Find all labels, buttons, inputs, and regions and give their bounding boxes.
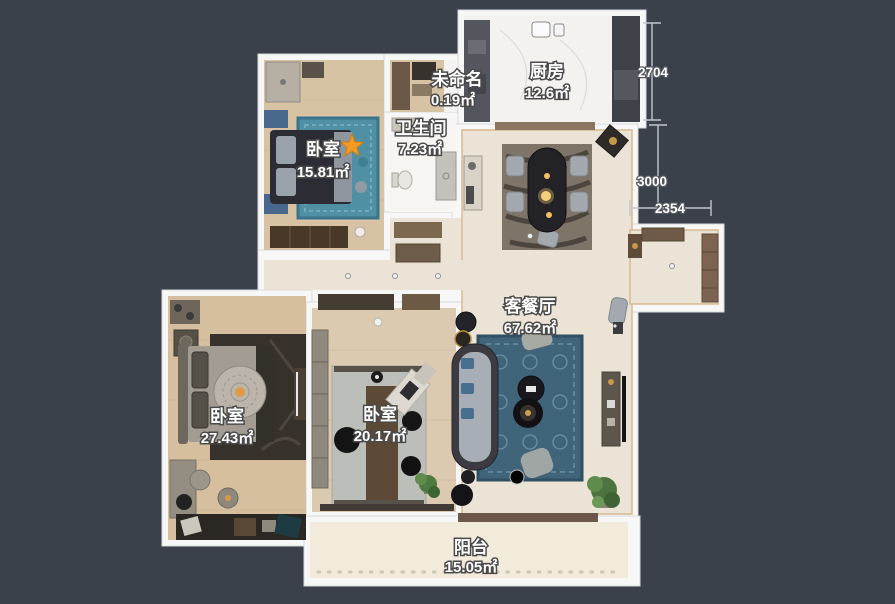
- tv-stand-left-bedroom[interactable]: [294, 368, 306, 420]
- label-living-dining-area: 67.62㎡: [504, 319, 557, 337]
- toilet-tank: [392, 173, 398, 187]
- closet-shelf-tall[interactable]: [392, 62, 410, 110]
- ceiling-light-corridor-2: [393, 274, 398, 279]
- pouf-middle-3[interactable]: [401, 456, 421, 476]
- fridge: [614, 70, 638, 100]
- label-bedroom-left-area: 27.43㎡: [201, 429, 254, 447]
- sink-icon-small: [554, 24, 564, 36]
- tv-cabinet-item-2: [607, 418, 615, 426]
- dining-chair-2[interactable]: [506, 192, 524, 212]
- label-unnamed-area: 0.19㎡: [431, 91, 475, 109]
- chandelier-light-3: [546, 212, 552, 218]
- wardrobe-middle[interactable]: [312, 330, 328, 488]
- tv-cabinet-decor: [608, 379, 614, 385]
- plant-middle-leaf-1: [415, 473, 427, 485]
- label-living-dining-name: 客餐厅: [504, 296, 556, 316]
- coffee-table-center: [525, 410, 531, 416]
- closet-shelf-small: [412, 84, 432, 96]
- label-bedroom-top-left-name: 卧室: [306, 139, 340, 159]
- hall-header-dark: [318, 294, 394, 310]
- floorplan-canvas: 卧室 15.81㎡ 卫生间 7.23㎡ 未命名 0.19㎡ 厨房 12.6㎡ 客…: [0, 0, 895, 604]
- bed-left-pillow-2: [192, 392, 208, 428]
- label-bedroom-middle-area: 20.17㎡: [354, 427, 407, 445]
- tv-cabinet-item-1: [607, 400, 615, 408]
- bed-headboard-left: [178, 344, 188, 444]
- dim-label-2354: 2354: [655, 201, 686, 216]
- shelf-item[interactable]: [302, 62, 324, 78]
- floorplan-svg: 卧室 15.81㎡ 卫生间 7.23㎡ 未命名 0.19㎡ 厨房 12.6㎡ 客…: [0, 0, 895, 604]
- round-table-left-bedroom[interactable]: [190, 470, 210, 490]
- toilet[interactable]: [398, 171, 412, 189]
- pouf-small: [461, 470, 475, 484]
- plant-living-leaf-2: [604, 492, 620, 508]
- dining-chair-4[interactable]: [570, 192, 588, 212]
- label-bedroom-top-left-area: 15.81㎡: [297, 163, 350, 181]
- plant-living-leaf-3: [592, 496, 604, 508]
- chandelier-light-1: [544, 173, 550, 179]
- tv-screen[interactable]: [622, 376, 626, 442]
- cooktop: [468, 40, 486, 54]
- sofa-pillow-2: [461, 383, 474, 394]
- rug-cushion-1: [358, 157, 368, 167]
- hall-header-brown: [402, 294, 440, 310]
- switch-icon-dot: [613, 324, 616, 327]
- ceiling-light-middle: [374, 318, 382, 326]
- window-seat-pillow-gray: [262, 520, 276, 532]
- ceiling-light-living: [528, 234, 533, 239]
- dim-label-2704: 2704: [638, 65, 669, 80]
- bed-left-pillow-1: [192, 352, 208, 388]
- sink-icon: [532, 22, 550, 37]
- rug-cushion-2: [355, 181, 367, 193]
- pouf-decor: [225, 495, 231, 501]
- plant-middle-leaf-2: [428, 486, 440, 498]
- label-unnamed-name: 未命名: [431, 69, 483, 89]
- window-frame-middle: [320, 504, 454, 511]
- dim-label-3000: 3000: [637, 174, 667, 189]
- round-stool-dark[interactable]: [456, 312, 476, 332]
- kitchen-door-sill: [495, 122, 595, 130]
- extension-cabinet-right[interactable]: [702, 234, 718, 302]
- plant-living-leaf-1: [587, 476, 603, 492]
- hall-cabinet-lower[interactable]: [396, 244, 440, 262]
- chair-dark-left-bedroom[interactable]: [176, 494, 192, 510]
- pouf-large[interactable]: [451, 484, 473, 506]
- ceiling-light-extension: [670, 264, 675, 269]
- label-balcony-area: 15.05㎡: [445, 558, 498, 576]
- coffee-table-tray: [526, 386, 536, 392]
- label-bathroom-name: 卫生间: [396, 118, 447, 138]
- side-table-item-1: [174, 304, 182, 312]
- label-kitchen-area: 12.6㎡: [525, 84, 569, 102]
- label-bathroom-area: 7.23㎡: [398, 140, 442, 158]
- mandala-center: [235, 387, 245, 397]
- sideboard-bowl: [468, 162, 476, 170]
- bed-pillow-1: [276, 136, 296, 164]
- extension-decor-gold: [632, 243, 638, 249]
- pouf-middle-4-dot: [375, 375, 379, 379]
- shower[interactable]: [436, 152, 456, 200]
- label-bedroom-middle-name: 卧室: [363, 404, 397, 424]
- label-bedroom-left-name: 卧室: [210, 406, 244, 426]
- stool-white: [355, 227, 365, 237]
- side-table-top[interactable]: [170, 300, 200, 324]
- window-seat-box: [234, 518, 256, 536]
- sofa-pillow-1: [461, 358, 474, 369]
- side-stool-white: [510, 470, 524, 484]
- sofa-pillow-3: [461, 408, 474, 419]
- side-table-item-2: [186, 312, 194, 320]
- tv-left-bedroom: [296, 372, 298, 416]
- label-kitchen-name: 厨房: [530, 61, 564, 81]
- blue-mat-1[interactable]: [264, 110, 288, 128]
- extension-cabinet-top[interactable]: [642, 228, 684, 241]
- hall-cabinet-upper[interactable]: [394, 222, 442, 238]
- chandelier-light-2: [541, 191, 551, 201]
- sideboard-vase: [466, 186, 474, 204]
- ceiling-light-corridor-1: [346, 274, 351, 279]
- label-balcony-name: 阳台: [454, 537, 488, 557]
- switch-icon: [613, 322, 623, 334]
- bed-pillow-2: [276, 168, 296, 196]
- kitchen-counter-right[interactable]: [612, 16, 640, 122]
- accent-chair-cushion: [609, 137, 617, 145]
- dresser-knob: [280, 79, 286, 85]
- ceiling-light-corridor-3: [436, 274, 441, 279]
- dining-chair-1[interactable]: [506, 156, 524, 176]
- dining-chair-3[interactable]: [570, 156, 588, 176]
- balcony-door-sill: [458, 513, 598, 522]
